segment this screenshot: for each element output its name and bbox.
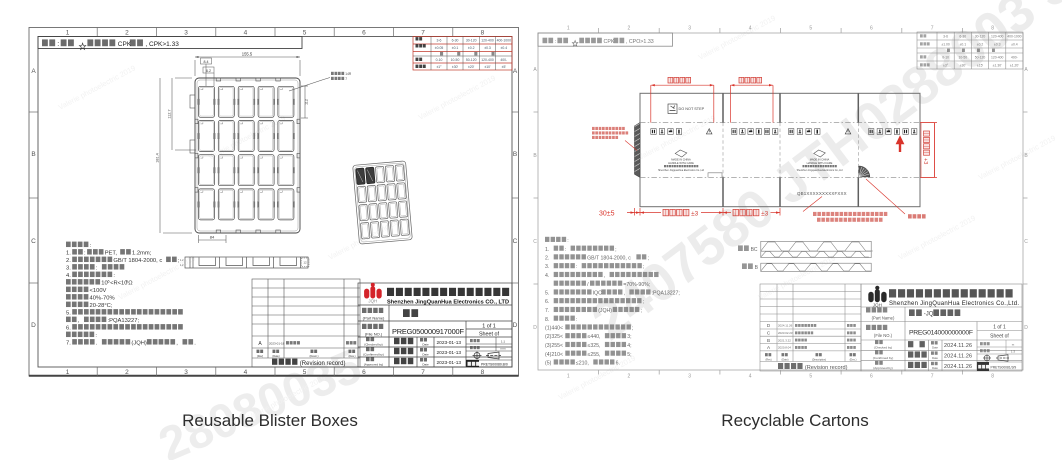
svg-text:DO NOT STEP: DO NOT STEP [679, 107, 705, 111]
svg-text:(2)325<: (2)325< [545, 334, 563, 340]
svg-text:+3: +3 [922, 158, 928, 164]
svg-text:QB1XXXXXXXXXFXXX: QB1XXXXXXXXXFXXX [797, 191, 847, 196]
svg-text:155.5: 155.5 [242, 52, 253, 57]
svg-text:Date: Date [422, 352, 429, 356]
svg-text:(Descr.): (Descr.) [309, 354, 318, 358]
svg-text:(Revision record): (Revision record) [300, 361, 346, 367]
svg-text:±0.1: ±0.1 [452, 46, 459, 50]
svg-text:(Approved by): (Approved by) [364, 362, 383, 366]
svg-text:(Rev): (Rev) [765, 358, 771, 361]
svg-text:±15': ±15' [977, 64, 984, 68]
svg-text:C: C [533, 239, 537, 245]
svg-text:±0.05: ±0.05 [435, 46, 444, 50]
svg-text:Shenzhen Jingquanhua Electroni: Shenzhen Jingquanhua Electronics Co.,Ltd [797, 169, 844, 172]
svg-text:1.2: 1.2 [180, 258, 184, 262]
svg-text:D: D [533, 325, 537, 331]
svg-text:4.: 4. [545, 273, 549, 279]
svg-text:±1.20': ±1.20' [1010, 64, 1019, 68]
svg-text:(Date): (Date) [782, 358, 789, 361]
svg-text:40%-70%: 40%-70% [90, 296, 115, 302]
svg-text:5.: 5. [545, 291, 549, 297]
svg-text:6-30: 6-30 [959, 35, 966, 39]
svg-text:,: , [604, 273, 605, 279]
svg-text:A: A [513, 68, 518, 75]
svg-text:3;: 3; [627, 334, 631, 340]
svg-text:84: 84 [210, 235, 215, 240]
svg-text:50-120: 50-120 [466, 58, 477, 62]
svg-text:Date: Date [932, 366, 938, 370]
svg-text:;: ; [641, 308, 642, 314]
svg-text:IQC: IQC [593, 291, 602, 297]
svg-text:2020.8.04: 2020.8.04 [778, 346, 791, 350]
svg-text:8.: 8. [545, 317, 549, 323]
svg-text:7: 7 [931, 374, 934, 380]
svg-text:2023.02.23: 2023.02.23 [778, 331, 793, 335]
svg-text:3: 3 [184, 30, 188, 37]
svg-text:D: D [31, 322, 36, 329]
svg-text:BC: BC [751, 247, 758, 253]
svg-text:Valerie photoelectric 2019: Valerie photoelectric 2019 [977, 133, 1057, 181]
svg-text::PQA13227;: :PQA13227; [652, 291, 680, 297]
svg-text:Valerie photoelectric 2019: Valerie photoelectric 2019 [697, 13, 777, 61]
svg-text:50-120: 50-120 [975, 56, 986, 60]
svg-text:,: , [176, 341, 178, 347]
svg-text::: : [576, 264, 577, 270]
svg-text:CPK: CPK [118, 41, 132, 48]
svg-text:±0.3: ±0.3 [994, 43, 1001, 47]
svg-text:10-50: 10-50 [958, 56, 967, 60]
svg-text:1 of 1: 1 of 1 [482, 324, 496, 330]
svg-text:JQH: JQH [873, 303, 882, 308]
svg-text:400-: 400- [1011, 56, 1018, 60]
svg-text:(Description): (Description) [812, 358, 826, 361]
svg-text:JQH: JQH [368, 299, 377, 304]
svg-text:Valerie photoelectric 2019: Valerie photoelectric 2019 [897, 213, 977, 261]
svg-text:20-28°C;: 20-28°C; [90, 303, 113, 309]
svg-text:(Part Name): (Part Name) [872, 316, 895, 321]
svg-text:4: 4 [244, 369, 248, 376]
svg-text:400-1000: 400-1000 [497, 39, 511, 43]
svg-text:A: A [1024, 67, 1028, 73]
svg-text:≤325,: ≤325, [588, 343, 601, 349]
svg-text:±30': ±30' [960, 64, 967, 68]
svg-text:(File NO.): (File NO.) [365, 332, 383, 337]
svg-text:7.: 7. [66, 341, 71, 347]
svg-text:±10': ±10' [484, 65, 491, 69]
svg-text:5.: 5. [66, 311, 71, 317]
svg-text:5;: 5; [627, 352, 631, 358]
svg-text:Recyclable Cartons: Recyclable Cartons [721, 411, 868, 430]
svg-text:6-30: 6-30 [452, 39, 459, 43]
svg-text:14R: 14R [345, 72, 352, 76]
svg-text:10-50: 10-50 [451, 58, 460, 62]
svg-text:3-6: 3-6 [437, 39, 442, 43]
svg-text:3: 3 [184, 369, 188, 376]
svg-text:6: 6 [870, 26, 873, 32]
svg-text:1 of 1: 1 of 1 [993, 325, 1006, 331]
svg-text:±0.2: ±0.2 [977, 43, 984, 47]
svg-text:D: D [513, 322, 518, 329]
svg-text::: : [57, 41, 59, 48]
svg-text:4: 4 [244, 30, 248, 37]
svg-text:3.: 3. [66, 266, 71, 272]
svg-text:(Date): (Date) [272, 354, 279, 358]
svg-text:1: 1 [66, 30, 70, 37]
svg-text:(3)255<: (3)255< [545, 343, 563, 349]
svg-text:±5': ±5' [502, 65, 507, 69]
svg-text:5: 5 [303, 30, 307, 37]
svg-text:±0.4: ±0.4 [1011, 43, 1018, 47]
svg-text::: : [84, 251, 86, 257]
svg-text:4.: 4. [66, 273, 71, 279]
svg-text:4: 4 [749, 374, 752, 380]
svg-text:2: 2 [125, 369, 129, 376]
svg-text::: : [576, 317, 577, 323]
svg-text:≤440,: ≤440, [588, 334, 601, 340]
svg-text:.: . [96, 341, 98, 347]
svg-text:mm: mm [501, 347, 506, 351]
svg-text:PREG050000917000F: PREG050000917000F [392, 327, 464, 336]
svg-text:3: 3 [688, 374, 691, 380]
svg-text:181.4: 181.4 [156, 153, 160, 163]
svg-text:Valerie photoelectric 2019: Valerie photoelectric 2019 [757, 253, 837, 301]
svg-text:±0.1: ±0.1 [960, 43, 967, 47]
svg-text:8: 8 [481, 369, 485, 376]
svg-text:6.2: 6.2 [206, 69, 211, 73]
svg-text::: : [113, 273, 115, 279]
svg-text:Valerie photoelectric 2019: Valerie photoelectric 2019 [57, 63, 137, 111]
svg-text:<100V: <100V [90, 288, 107, 294]
svg-text:1:1: 1:1 [501, 340, 506, 344]
svg-text:D: D [767, 323, 771, 328]
svg-text:±20': ±20' [468, 65, 475, 69]
svg-text:2: 2 [628, 374, 631, 380]
svg-text:PREG014000000000F: PREG014000000000F [909, 330, 973, 337]
svg-text:±3: ±3 [761, 210, 769, 217]
svg-text:(Confirmed by): (Confirmed by) [363, 352, 383, 356]
svg-text:7.: 7. [545, 308, 549, 314]
svg-text:≤255,: ≤255, [588, 352, 601, 358]
svg-text:0-10: 0-10 [942, 56, 949, 60]
svg-text:(Part Name): (Part Name) [363, 316, 385, 321]
svg-text:;: ; [643, 264, 644, 270]
svg-text:Ω: Ω [128, 281, 133, 287]
svg-text:3: 3 [688, 26, 691, 32]
svg-text:D: D [1024, 325, 1028, 331]
svg-text:112: 112 [305, 99, 309, 105]
svg-text:Date: Date [932, 356, 938, 360]
svg-text:≤210,: ≤210, [576, 361, 589, 367]
svg-text:(JQH): (JQH) [598, 308, 612, 314]
svg-text:Shenzhen Jingquanhua Electroni: Shenzhen Jingquanhua Electronics Co.,Ltd [658, 169, 705, 172]
svg-text:, CPO>1.33: , CPO>1.33 [626, 39, 654, 45]
svg-text:,: , [78, 318, 80, 324]
svg-text:,: , [624, 291, 625, 297]
svg-text:6.: 6. [66, 326, 71, 332]
svg-text:Shenzhen JingQuanHua Electroni: Shenzhen JingQuanHua Electronics CO., LT… [387, 300, 509, 306]
svg-text:5: 5 [303, 369, 307, 376]
svg-text:B: B [31, 151, 35, 158]
svg-text:6: 6 [362, 30, 366, 37]
svg-text:8: 8 [991, 26, 994, 32]
svg-text::: : [567, 238, 568, 244]
svg-text:400-1000: 400-1000 [1007, 35, 1021, 39]
svg-text:PRETS00081/3/9: PRETS00081/3/9 [991, 365, 1017, 369]
svg-text:C: C [31, 238, 36, 245]
svg-text:(1)440<: (1)440< [545, 326, 563, 332]
svg-text:(4)210<: (4)210< [545, 352, 563, 358]
svg-text:C: C [513, 238, 518, 245]
svg-text:2024.11.26: 2024.11.26 [944, 343, 972, 349]
svg-text:5: 5 [809, 374, 812, 380]
svg-text:-JQ: -JQ [924, 312, 934, 318]
svg-text:GB/T 1804-2000, c: GB/T 1804-2000, c [587, 256, 631, 262]
svg-text:A: A [767, 345, 771, 350]
svg-text:A: A [533, 67, 537, 73]
svg-text:4;: 4; [627, 343, 631, 349]
svg-text:C: C [1024, 239, 1028, 245]
svg-text:6.: 6. [545, 299, 549, 305]
svg-text:A: A [31, 68, 36, 75]
svg-text:PET,: PET, [105, 251, 118, 257]
svg-text:3.: 3. [545, 264, 549, 270]
svg-text:.: . [194, 341, 196, 347]
svg-text:5: 5 [809, 26, 812, 32]
svg-text:;: ; [632, 326, 633, 332]
svg-text:1:3: 1:3 [1011, 350, 1016, 354]
svg-text:3-6: 3-6 [943, 35, 948, 39]
svg-text:2023-01-13: 2023-01-13 [437, 350, 462, 356]
svg-text:1: 1 [66, 369, 70, 376]
svg-text:(File NO.): (File NO.) [874, 333, 893, 338]
svg-text:MADE IN CHINA: MADE IN CHINA [810, 158, 830, 162]
svg-text:2.: 2. [66, 258, 71, 264]
svg-text::: : [95, 333, 97, 339]
svg-text:Date: Date [422, 362, 429, 366]
svg-text:Date: Date [422, 342, 429, 346]
svg-text:±3: ±3 [691, 210, 699, 217]
svg-text:±0.4: ±0.4 [501, 46, 508, 50]
svg-text:A: A [258, 341, 262, 347]
svg-text:B: B [755, 265, 759, 271]
svg-text:2024.11.26: 2024.11.26 [778, 324, 793, 328]
svg-text:CPK: CPK [604, 39, 615, 45]
svg-text:B: B [513, 151, 517, 158]
svg-text:m: m [1012, 343, 1015, 347]
svg-text:C: C [767, 331, 771, 336]
svg-text:4: 4 [749, 26, 752, 32]
svg-text:±1.00: ±1.00 [941, 43, 950, 47]
svg-text:±1°: ±1° [436, 65, 442, 69]
svg-text:2024.11.26: 2024.11.26 [944, 354, 972, 360]
svg-text:2.: 2. [545, 256, 549, 262]
svg-text:2024.11.26: 2024.11.26 [944, 364, 972, 370]
svg-text:2021.3.22: 2021.3.22 [778, 338, 791, 342]
svg-text:120-400: 120-400 [991, 56, 1004, 60]
svg-text:B: B [533, 153, 537, 159]
svg-text:7: 7 [931, 26, 934, 32]
svg-text:/: / [587, 282, 589, 288]
svg-text:120-400: 120-400 [481, 58, 494, 62]
svg-text:, CPK>1.33: , CPK>1.33 [145, 41, 179, 48]
svg-text:(Rev): (Rev) [257, 354, 263, 358]
svg-text:Sheet of: Sheet of [990, 334, 1009, 340]
svg-text:400-: 400- [500, 58, 507, 62]
svg-text:30-120: 30-120 [975, 35, 986, 39]
svg-text:(5): (5) [545, 361, 552, 367]
svg-text:±0.3: ±0.3 [484, 46, 491, 50]
svg-text:112.7: 112.7 [168, 109, 172, 118]
svg-text:(Approved by): (Approved by) [873, 366, 892, 370]
svg-text:6.: 6. [616, 361, 620, 367]
svg-text:1: 1 [567, 374, 570, 380]
svg-text:(Confirmed by): (Confirmed by) [873, 356, 893, 360]
svg-text:(Checked by): (Checked by) [874, 346, 892, 350]
svg-text:MADE IN CHINA: MADE IN CHINA [671, 158, 691, 162]
svg-text:120-400: 120-400 [991, 35, 1004, 39]
svg-text:30-120: 30-120 [466, 39, 477, 43]
svg-text:GB/T 1804-2000, c: GB/T 1804-2000, c [113, 258, 162, 264]
svg-text::: : [90, 243, 92, 249]
svg-text:Shenzhen JingQuanHua Electroni: Shenzhen JingQuanHua Electronics Co.,Ltd… [889, 301, 1019, 307]
svg-text:±1.30': ±1.30' [993, 64, 1002, 68]
svg-text:=70%-90%;: =70%-90%; [623, 282, 650, 288]
svg-text:;: ; [615, 247, 616, 253]
svg-text:2023-01-13: 2023-01-13 [437, 360, 462, 366]
svg-text:±3°: ±3° [943, 64, 949, 68]
svg-text:HANDLE WITH CARE: HANDLE WITH CARE [668, 161, 694, 165]
svg-text:2: 2 [125, 30, 129, 37]
svg-text:±0.2: ±0.2 [468, 46, 475, 50]
svg-text:2023-01-13: 2023-01-13 [437, 340, 462, 346]
svg-text:(Revision record): (Revision record) [805, 365, 848, 371]
svg-text:Reusable Blister Boxes: Reusable Blister Boxes [182, 411, 358, 430]
svg-text:;: ; [648, 256, 649, 262]
svg-text:7: 7 [421, 369, 425, 376]
svg-text:1.2: 1.2 [180, 263, 184, 267]
svg-text:1: 1 [567, 26, 570, 32]
svg-text:(Checked by): (Checked by) [364, 342, 382, 346]
svg-text:8: 8 [481, 30, 485, 37]
svg-text::: : [555, 39, 557, 45]
svg-text:Sheet of: Sheet of [479, 332, 500, 338]
svg-text:(Des.): (Des.) [348, 354, 355, 358]
svg-text:7: 7 [421, 30, 425, 37]
svg-text:12: 12 [303, 261, 307, 265]
svg-text:6: 6 [362, 369, 366, 376]
svg-text:8: 8 [991, 374, 994, 380]
svg-text:±30': ±30' [452, 65, 459, 69]
svg-text:Valerie photoelectric 2019: Valerie photoelectric 2019 [417, 73, 497, 121]
svg-text:Date: Date [932, 346, 938, 350]
svg-text:1.: 1. [545, 247, 549, 253]
svg-text::PQA13227;: :PQA13227; [108, 318, 140, 324]
svg-text:1.2mm;: 1.2mm; [132, 251, 152, 257]
svg-text:30±5: 30±5 [599, 210, 615, 217]
svg-text:(JQH): (JQH) [131, 341, 147, 347]
svg-text:8.4: 8.4 [204, 60, 209, 64]
svg-text:0-10: 0-10 [436, 58, 443, 62]
svg-text:HANDLE WITH CARE: HANDLE WITH CARE [807, 161, 833, 165]
svg-text:PRETS00080.B/0: PRETS00080.B/0 [481, 362, 508, 366]
svg-text:6: 6 [870, 374, 873, 380]
svg-text:7: 7 [345, 77, 347, 81]
svg-text:2: 2 [628, 26, 631, 32]
svg-text:1.: 1. [66, 251, 71, 257]
svg-text:120-400: 120-400 [481, 39, 494, 43]
svg-text:2023-01-18: 2023-01-18 [269, 342, 285, 346]
svg-text:;: ; [643, 299, 644, 305]
svg-text:(Des.): (Des.) [850, 358, 857, 361]
svg-text::: : [96, 266, 98, 272]
svg-text:B: B [767, 338, 770, 343]
svg-text::: : [565, 247, 566, 253]
